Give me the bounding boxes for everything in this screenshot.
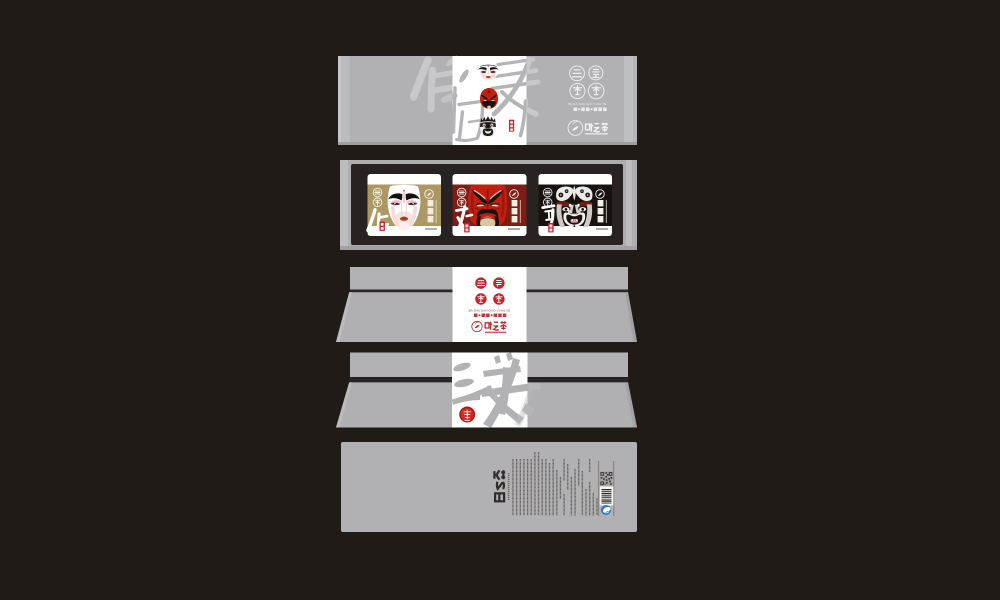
svg-text:BA SHU SAN GUO YUAN YE: BA SHU SAN GUO YUAN YE — [568, 102, 606, 106]
svg-text:BA SHU SAN GUO YUAN YE: BA SHU SAN GUO YUAN YE — [469, 309, 511, 313]
